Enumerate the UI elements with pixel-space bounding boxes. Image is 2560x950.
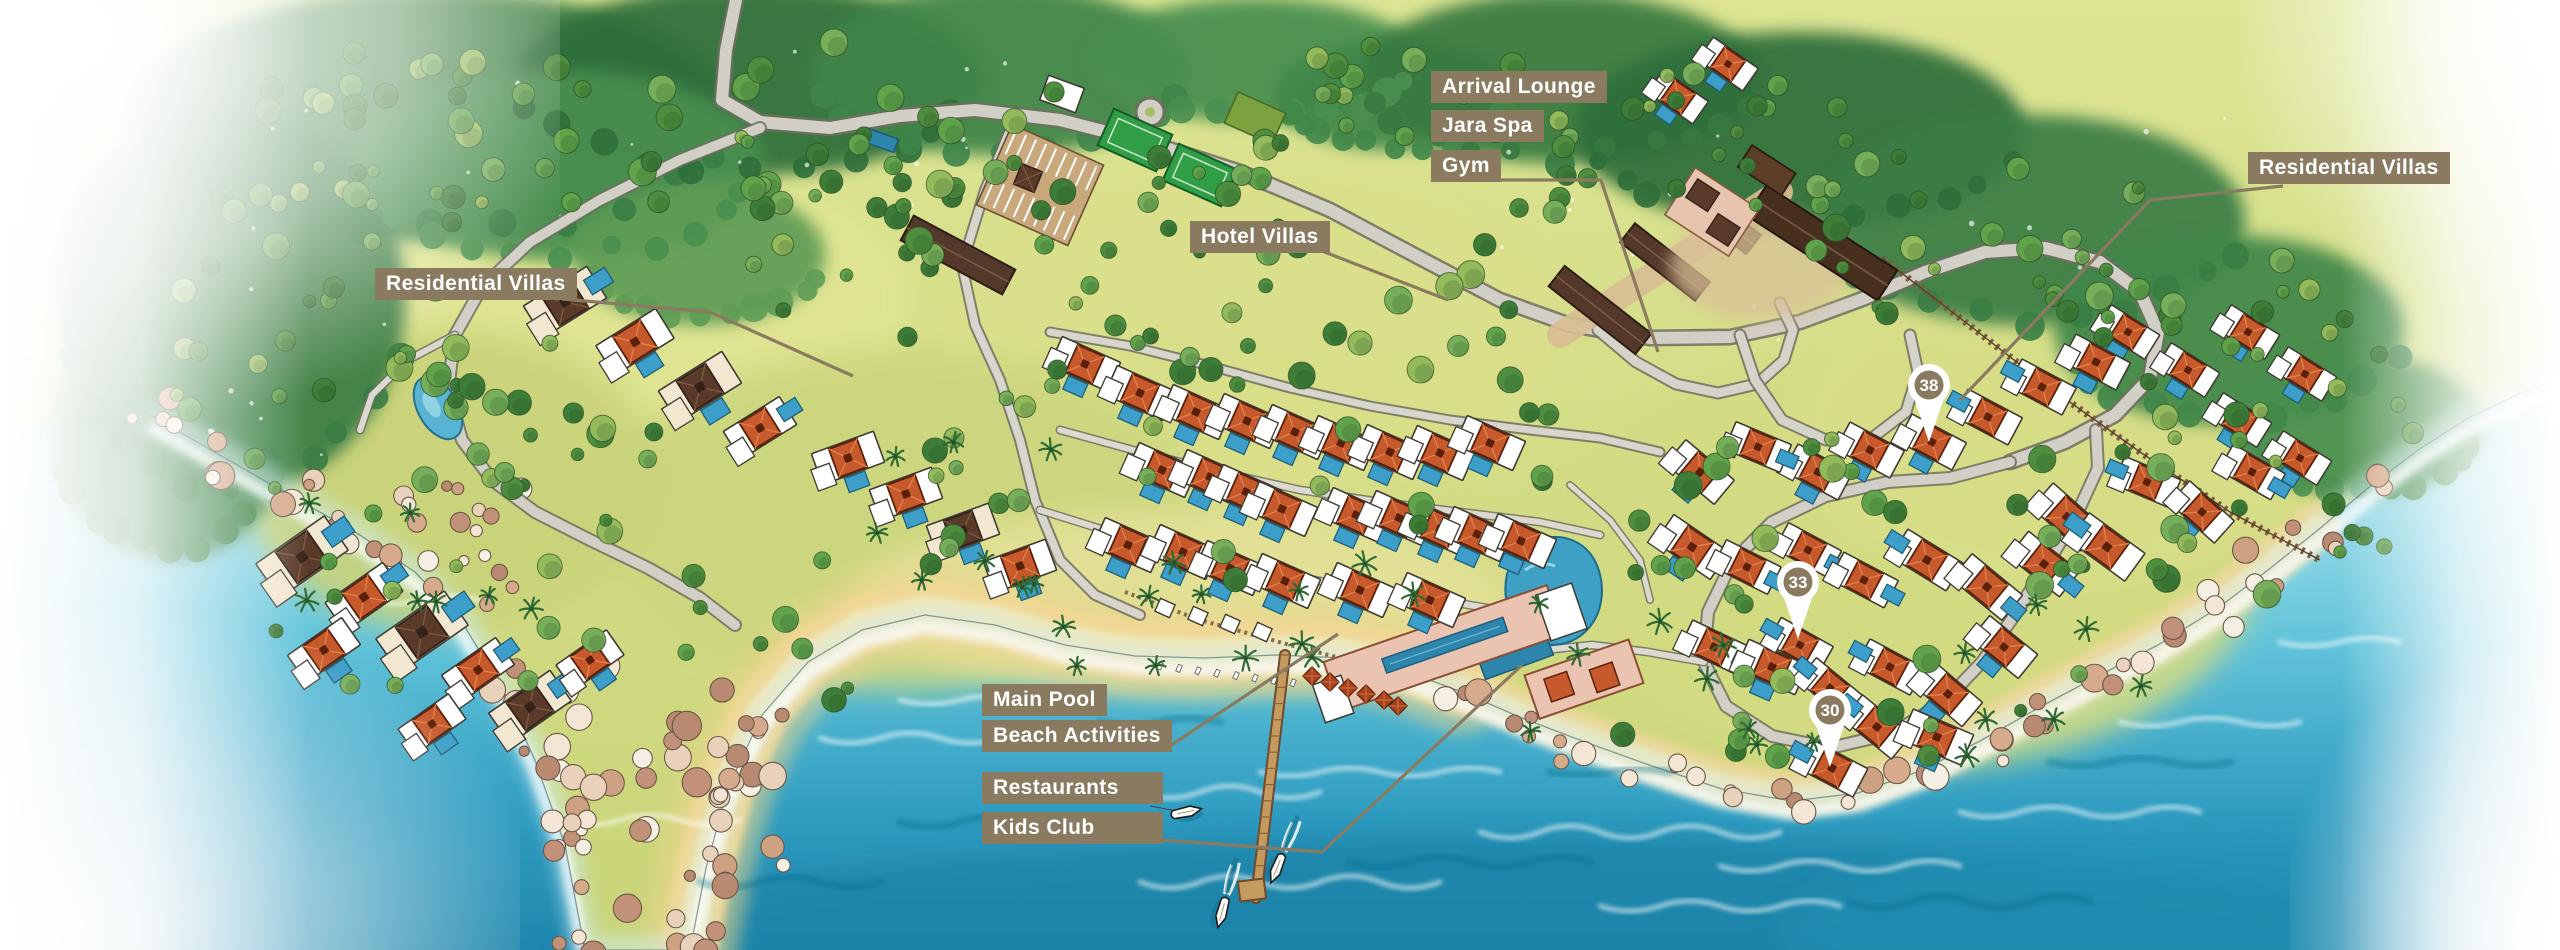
map-illustration: 383330 xyxy=(0,0,2560,950)
label-main-pool: Main Pool xyxy=(982,684,1107,716)
resort-map: 383330 Arrival Lounge Jara Spa Gym Hotel… xyxy=(0,0,2560,950)
label-beach-activities: Beach Activities xyxy=(982,720,1172,752)
label-restaurants: Restaurants xyxy=(982,772,1163,804)
svg-text:33: 33 xyxy=(1789,573,1808,592)
label-gym: Gym xyxy=(1431,150,1501,182)
svg-text:38: 38 xyxy=(1920,376,1939,395)
label-jara-spa: Jara Spa xyxy=(1431,110,1544,142)
label-kids-club: Kids Club xyxy=(982,812,1163,844)
label-arrival-lounge: Arrival Lounge xyxy=(1431,71,1607,103)
svg-text:30: 30 xyxy=(1821,701,1840,720)
label-hotel-villas: Hotel Villas xyxy=(1190,221,1330,253)
label-residential-villas-left: Residential Villas xyxy=(375,268,577,300)
label-residential-villas-right: Residential Villas xyxy=(2248,152,2450,184)
